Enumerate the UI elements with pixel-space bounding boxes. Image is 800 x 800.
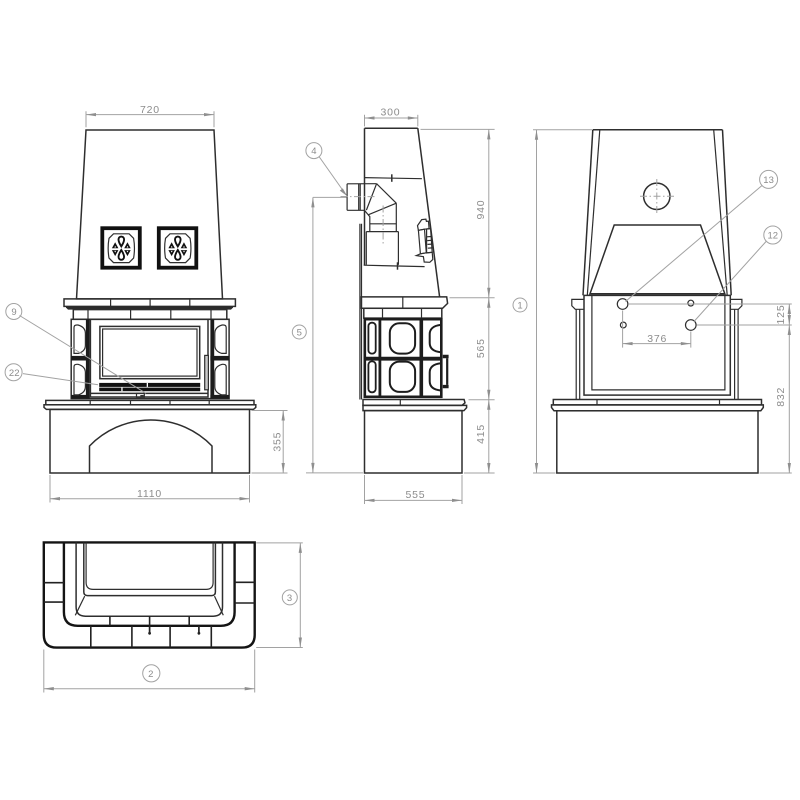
svg-text:125: 125 <box>775 305 787 325</box>
svg-text:720: 720 <box>140 104 160 116</box>
svg-text:2: 2 <box>148 669 153 680</box>
svg-text:555: 555 <box>406 489 426 501</box>
svg-text:3: 3 <box>287 593 292 604</box>
svg-text:355: 355 <box>271 432 283 452</box>
svg-text:832: 832 <box>775 387 787 407</box>
svg-text:4: 4 <box>311 146 316 157</box>
svg-text:5: 5 <box>297 328 302 339</box>
svg-text:22: 22 <box>9 368 20 379</box>
svg-text:9: 9 <box>11 307 16 318</box>
svg-text:376: 376 <box>647 333 667 345</box>
svg-text:565: 565 <box>475 338 487 358</box>
svg-text:12: 12 <box>768 231 779 242</box>
svg-text:1110: 1110 <box>137 488 162 500</box>
svg-text:415: 415 <box>475 424 487 444</box>
svg-text:300: 300 <box>381 107 401 119</box>
svg-text:940: 940 <box>475 200 487 220</box>
svg-text:13: 13 <box>763 175 774 186</box>
svg-text:1: 1 <box>517 301 522 312</box>
